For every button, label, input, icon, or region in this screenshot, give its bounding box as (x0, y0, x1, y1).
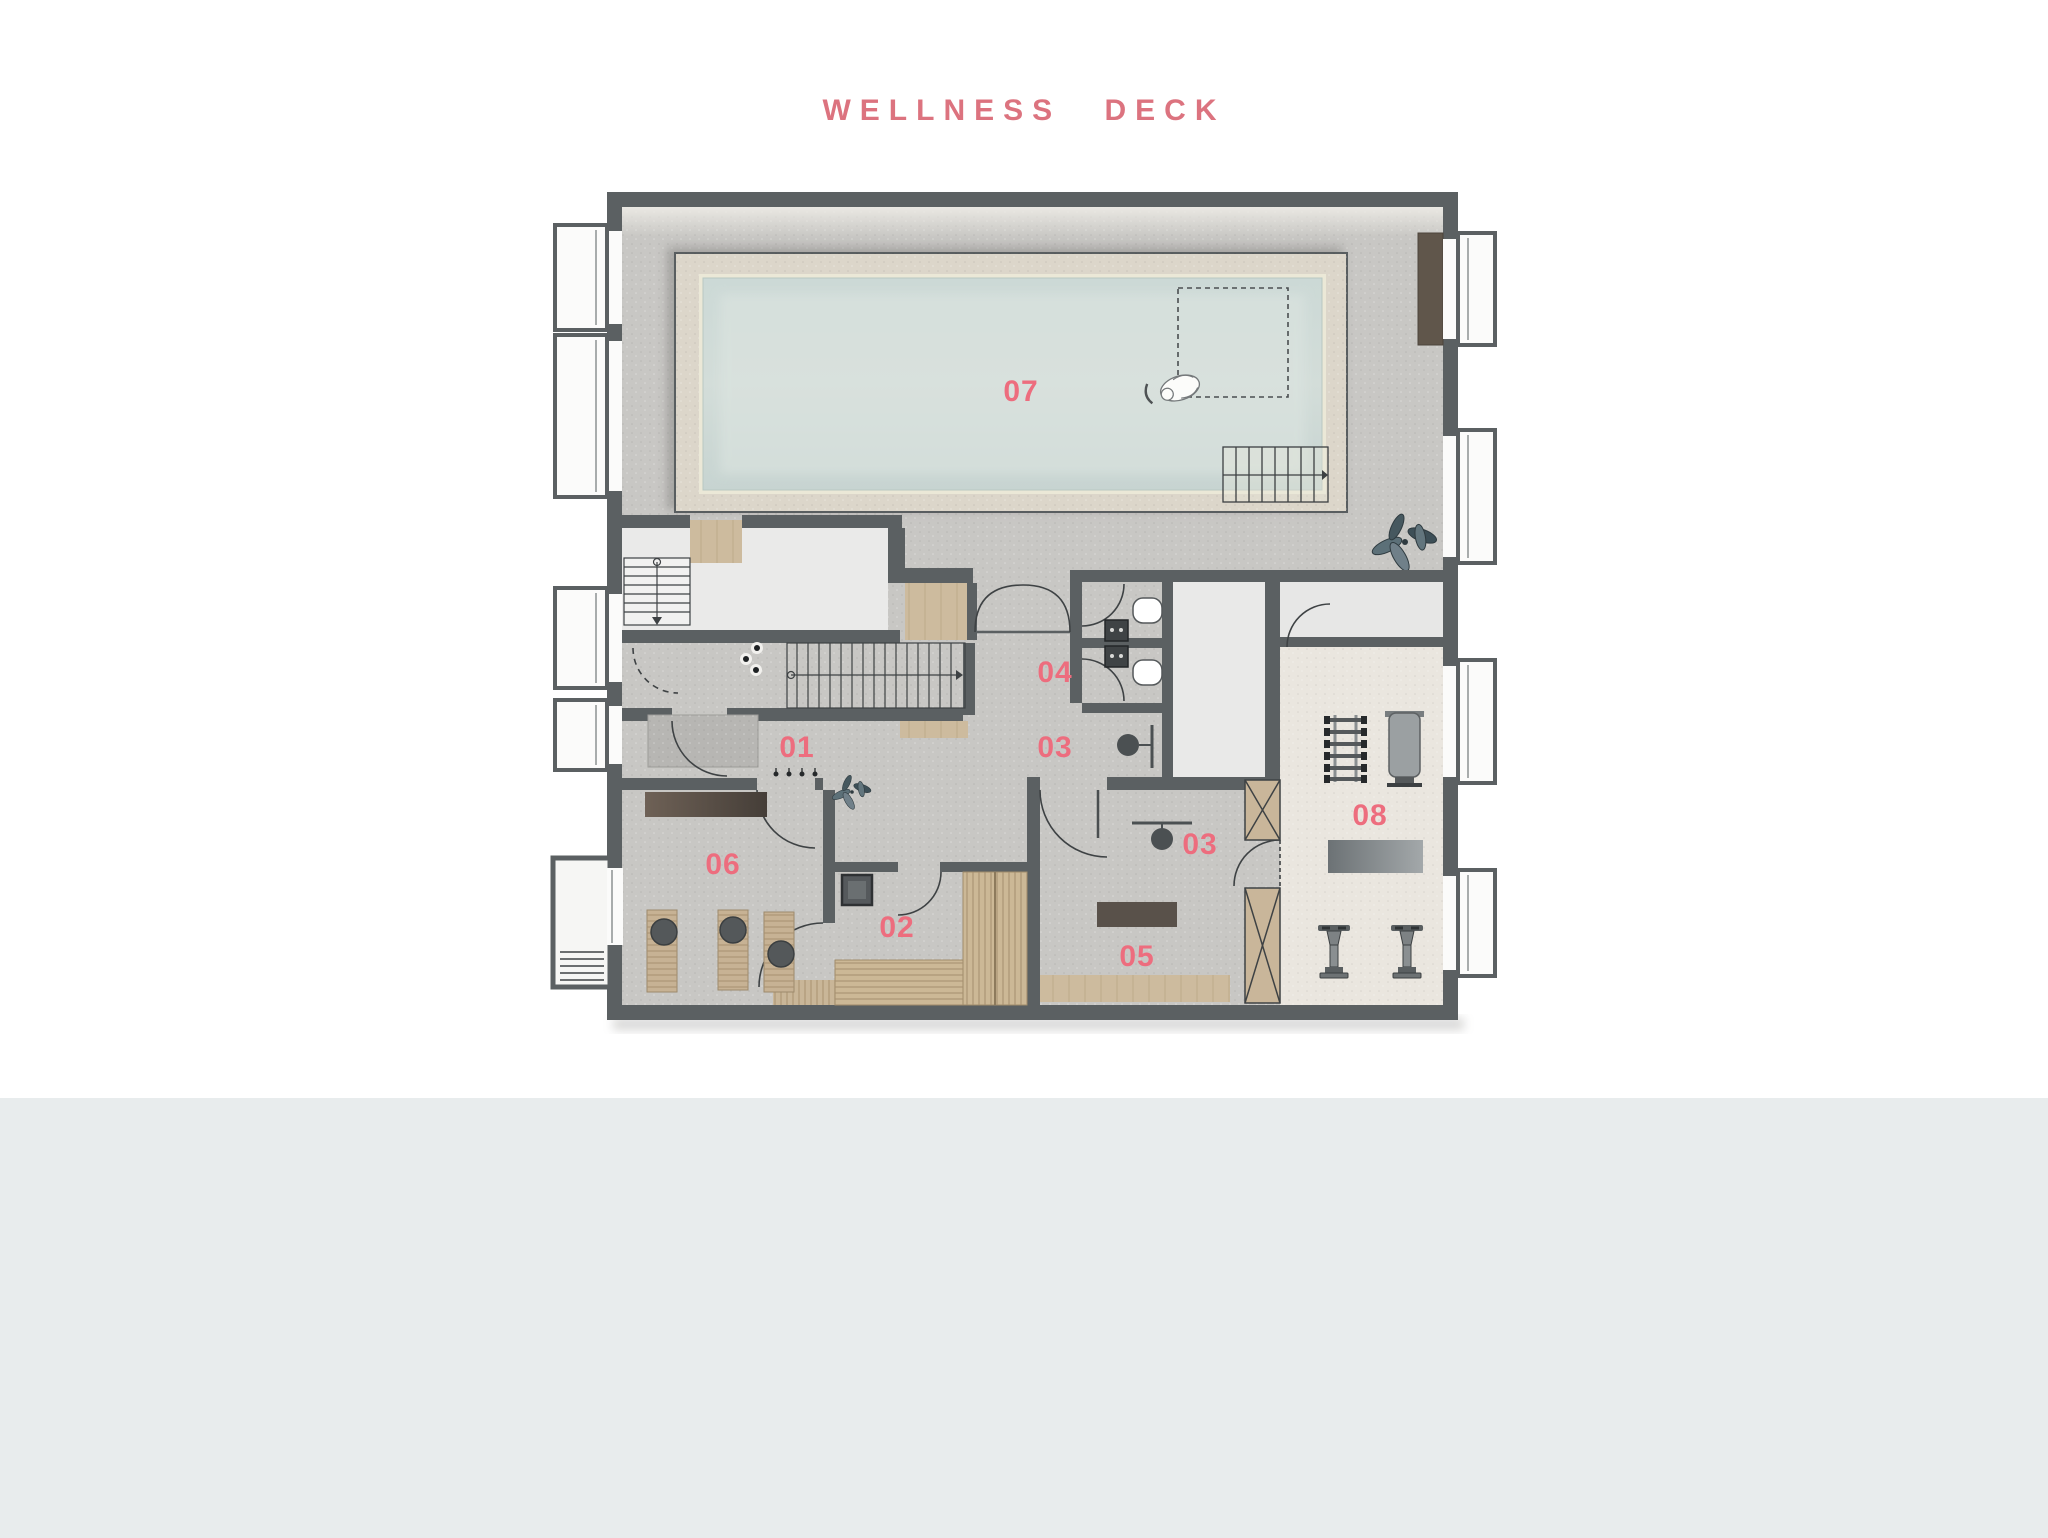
stairs-down-icon (624, 558, 690, 625)
toilet-icon (1133, 598, 1162, 623)
room-label-wcs: 04 (1037, 656, 1072, 689)
ceiling-light-band (622, 207, 1443, 237)
sideboard (645, 792, 767, 817)
room-label-pool: 07 (1003, 375, 1038, 408)
wood-threshold (905, 583, 967, 640)
window (555, 700, 622, 770)
window (1443, 430, 1495, 563)
toilet-icon (1133, 660, 1162, 685)
wood-floor (1040, 975, 1230, 1002)
room-label-relax-lounge: 06 (705, 848, 740, 881)
locker-icon (1245, 888, 1280, 1003)
sink-icon (1105, 620, 1128, 641)
window (555, 588, 622, 688)
room-label-sauna: 02 (879, 911, 914, 944)
pool-ladder-icon (1223, 447, 1328, 502)
sauna-bench (963, 872, 1027, 1005)
workout-bench-icon (1385, 711, 1424, 787)
room-label-schliessfaecher: 05 (1119, 940, 1154, 973)
window (1443, 660, 1495, 783)
lounger-icon (647, 910, 677, 992)
legend-panel: 01 Eingangsbereich 02 Sauna 03 Dusche 04… (0, 1098, 2048, 1538)
window (555, 335, 622, 497)
sink-icon (1105, 646, 1128, 667)
wood-threshold (900, 721, 968, 738)
page-title: WELLNESS DECK (0, 94, 2048, 128)
technic-room (1276, 582, 1443, 637)
pool-bench (1418, 233, 1443, 345)
lounger-icon (764, 912, 794, 992)
room-label-fitness: 08 (1352, 799, 1387, 832)
loungers (647, 910, 794, 992)
wellness-deck-page: WELLNESS DECK (0, 0, 2048, 1538)
sauna-stove-icon (842, 875, 872, 905)
lockers (1245, 780, 1280, 1003)
window (1443, 233, 1495, 345)
locker-icon (1245, 780, 1280, 840)
room-label-dusche-a: 03 (1037, 731, 1072, 764)
wood-threshold (690, 520, 742, 563)
floor-plan-container: 07 01 04 03 03 08 06 02 05 (540, 170, 1530, 1050)
floor-plan: 07 01 04 03 03 08 06 02 05 (540, 170, 1530, 1050)
window (1443, 870, 1495, 976)
gym-mat (1328, 840, 1423, 873)
window (555, 225, 622, 330)
balcony (553, 858, 623, 987)
room-label-dusche-b: 03 (1182, 828, 1217, 861)
storage-room (1173, 582, 1265, 777)
locker-bench (1097, 902, 1177, 927)
sauna-bench (835, 960, 963, 1005)
lounger-icon (718, 910, 748, 990)
room-label-eingangsbereich: 01 (779, 731, 814, 764)
